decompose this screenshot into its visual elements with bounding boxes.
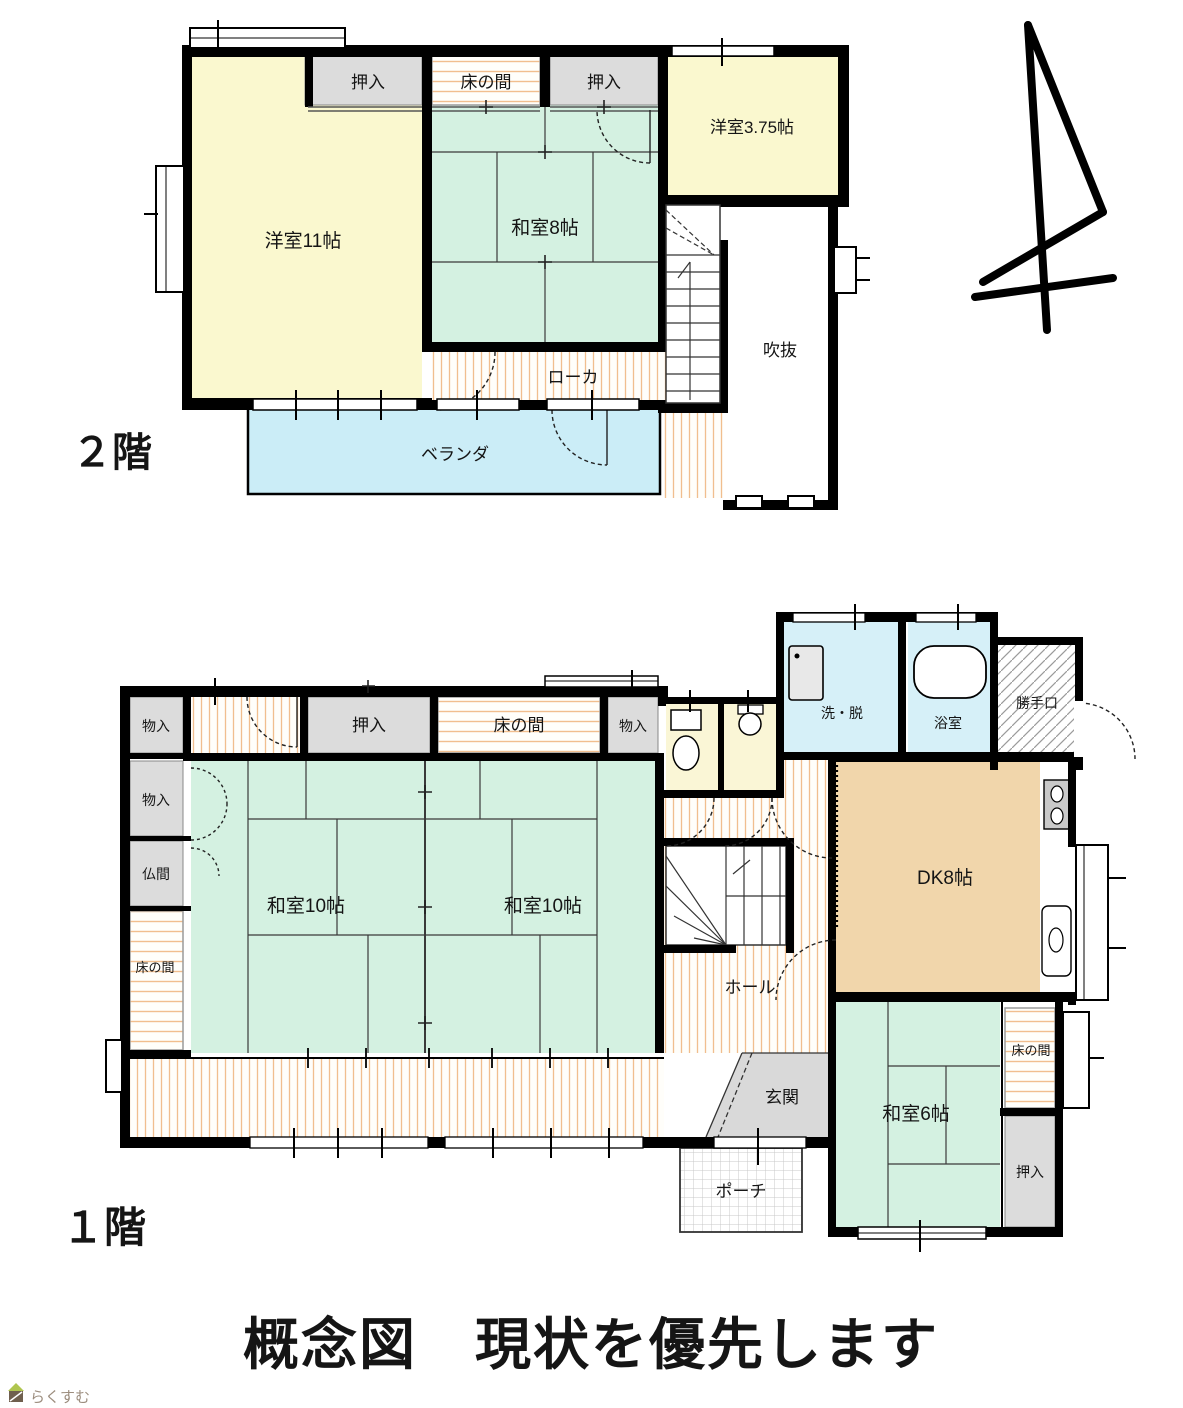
north-arrow-icon	[975, 25, 1113, 330]
bathtub-icon	[914, 646, 986, 698]
label-dk: DK8帖	[917, 867, 973, 889]
label-washitsu8: 和室8帖	[511, 217, 579, 239]
label-yoshitsu375: 洋室3.75帖	[710, 118, 794, 137]
label-roka: ローカ	[548, 368, 599, 387]
label-oshiire-2f-right: 押入	[587, 73, 621, 92]
floor1-plan: 物入 押入 床の間 物入 物入 仏間 床の間 和室10帖 和室10帖 洗・脱 浴…	[106, 604, 1135, 1252]
floor2-label: ２階	[72, 431, 152, 475]
engawa-stripes	[128, 1058, 664, 1137]
label-oshiire-bottom: 押入	[1016, 1164, 1044, 1180]
sink-icon	[1042, 906, 1071, 976]
label-fukinuke: 吹抜	[763, 341, 797, 360]
page-title: 概念図 現状を優先します	[243, 1313, 939, 1376]
floorplan-drawing: 押入 床の間 押入 洋室3.75帖 洋室11帖 和室8帖 ローカ 吹抜 ベランダ	[0, 0, 1183, 1408]
label-genkan: 玄関	[765, 1088, 799, 1107]
label-katteguchi: 勝手口	[1016, 695, 1058, 711]
label-porch: ポーチ	[716, 1182, 767, 1201]
label-tokonoma-1f-right: 床の間	[1011, 1043, 1050, 1058]
vestibule-stripes	[191, 697, 300, 755]
label-washitsu10-left: 和室10帖	[267, 895, 345, 917]
label-monoire-top: 物入	[142, 718, 170, 734]
stairs-1f	[666, 846, 786, 945]
label-yoshitsu11: 洋室11帖	[265, 230, 342, 252]
label-monoire-left: 物入	[142, 792, 170, 808]
label-veranda: ベランダ	[421, 445, 489, 464]
floor1-label: １階	[62, 1204, 146, 1251]
corridor-roka-leg	[664, 410, 723, 498]
floorplan-page: 押入 床の間 押入 洋室3.75帖 洋室11帖 和室8帖 ローカ 吹抜 ベランダ	[0, 0, 1183, 1408]
stove-icon	[1044, 780, 1071, 829]
tokonoma-1f-right	[1005, 1008, 1055, 1108]
label-sentaku: 洗・脱	[821, 705, 863, 721]
label-washitsu10-right: 和室10帖	[504, 895, 582, 917]
label-oshiire-1f-top: 押入	[352, 716, 386, 735]
watermark: らくすむ	[8, 1383, 90, 1406]
label-yokushitsu: 浴室	[934, 715, 962, 731]
label-butsuma: 仏間	[142, 866, 170, 882]
hall-stripes-upper	[784, 760, 828, 800]
floor2-plan: 押入 床の間 押入 洋室3.75帖 洋室11帖 和室8帖 ローカ 吹抜 ベランダ	[144, 20, 870, 510]
label-tokonoma-1f-left: 床の間	[135, 960, 174, 975]
label-tokonoma-2f: 床の間	[461, 73, 512, 92]
washing-machine-icon	[789, 646, 823, 700]
label-washitsu6: 和室6帖	[882, 1103, 950, 1125]
label-hall: ホール	[725, 978, 776, 997]
label-tokonoma-1f-top: 床の間	[494, 716, 545, 735]
tokonoma-1f-left	[130, 911, 183, 1050]
label-monoire-top2: 物入	[619, 718, 647, 734]
stairs-2f	[666, 205, 720, 403]
house-icon	[8, 1383, 24, 1402]
label-oshiire-2f-left: 押入	[351, 73, 385, 92]
watermark-text: らくすむ	[30, 1389, 90, 1406]
washbasin-icon	[738, 705, 763, 735]
